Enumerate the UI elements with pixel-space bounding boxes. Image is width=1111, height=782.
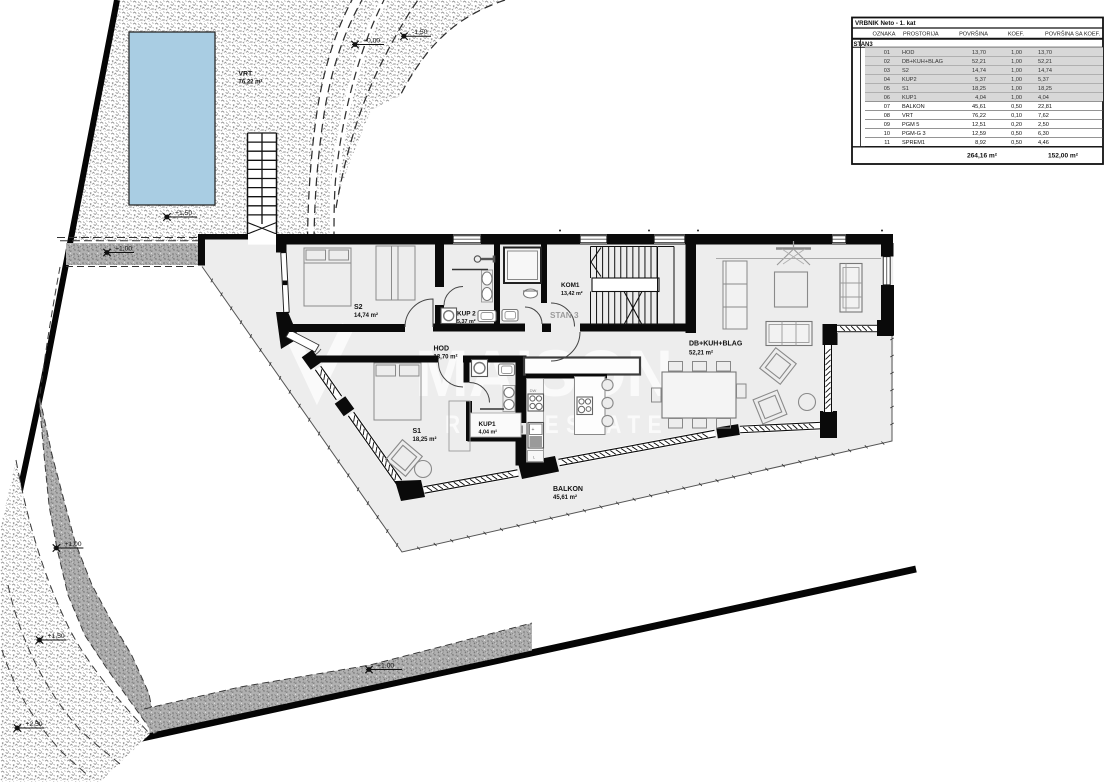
svg-text:4,04: 4,04 bbox=[975, 95, 986, 101]
svg-text:+1,00: +1,00 bbox=[377, 662, 394, 669]
svg-text:DB+KUH+BLAG: DB+KUH+BLAG bbox=[902, 59, 943, 65]
svg-text:2,50: 2,50 bbox=[1038, 122, 1049, 128]
svg-text:-1,50: -1,50 bbox=[412, 29, 428, 36]
svg-text:18,25: 18,25 bbox=[972, 86, 986, 92]
svg-text:DB+KUH+BLAG: DB+KUH+BLAG bbox=[689, 341, 743, 348]
svg-text:0,10: 0,10 bbox=[1011, 113, 1022, 119]
svg-text:52,21: 52,21 bbox=[1038, 59, 1052, 65]
svg-text:SPREM1: SPREM1 bbox=[902, 140, 925, 146]
svg-text:1,00: 1,00 bbox=[1011, 50, 1022, 56]
svg-text:14,74: 14,74 bbox=[972, 68, 986, 74]
svg-text:22,81: 22,81 bbox=[1038, 104, 1052, 110]
svg-text:18,25 m²: 18,25 m² bbox=[413, 436, 437, 443]
svg-text:6,30: 6,30 bbox=[1038, 131, 1049, 137]
svg-text:12,51: 12,51 bbox=[972, 122, 986, 128]
svg-text:BALKON: BALKON bbox=[553, 486, 583, 493]
svg-text:0,50: 0,50 bbox=[1011, 140, 1022, 146]
svg-text:OZNAKA: OZNAKA bbox=[872, 31, 895, 37]
svg-text:45,61: 45,61 bbox=[972, 104, 986, 110]
svg-text:1,00: 1,00 bbox=[1011, 59, 1022, 65]
svg-text:13,42 m²: 13,42 m² bbox=[561, 291, 583, 297]
svg-text:PGM-G 3: PGM-G 3 bbox=[902, 131, 926, 137]
svg-text:04: 04 bbox=[884, 77, 890, 83]
svg-text:+0,00: +0,00 bbox=[363, 37, 380, 44]
svg-text:14,74: 14,74 bbox=[1038, 68, 1052, 74]
svg-text:KUP2: KUP2 bbox=[902, 77, 917, 83]
svg-text:S1: S1 bbox=[413, 428, 422, 435]
svg-text:06: 06 bbox=[884, 95, 890, 101]
svg-text:4,04 m²: 4,04 m² bbox=[479, 430, 498, 436]
svg-text:S2: S2 bbox=[902, 68, 909, 74]
svg-text:STAN 3: STAN 3 bbox=[550, 311, 579, 320]
svg-text:02: 02 bbox=[884, 59, 890, 65]
svg-text:DW: DW bbox=[530, 388, 537, 393]
svg-text:45,61 m²: 45,61 m² bbox=[553, 494, 577, 501]
svg-text:09: 09 bbox=[884, 122, 890, 128]
svg-text:08: 08 bbox=[884, 113, 890, 119]
svg-text:POVRŠINA SA KOEF.: POVRŠINA SA KOEF. bbox=[1045, 30, 1100, 37]
svg-text:11: 11 bbox=[884, 140, 890, 146]
svg-text:+2,50: +2,50 bbox=[25, 721, 42, 728]
svg-text:76,22 m²: 76,22 m² bbox=[239, 79, 263, 86]
svg-text:KOEF.: KOEF. bbox=[1008, 31, 1025, 37]
svg-text:18,25: 18,25 bbox=[1038, 86, 1052, 92]
svg-text:5,37: 5,37 bbox=[975, 77, 986, 83]
svg-text:KUP1: KUP1 bbox=[902, 95, 917, 101]
svg-text:+1,00: +1,00 bbox=[64, 541, 81, 548]
svg-text:1,00: 1,00 bbox=[1011, 68, 1022, 74]
svg-text:HOD: HOD bbox=[902, 50, 914, 56]
svg-text:1,00: 1,00 bbox=[1011, 95, 1022, 101]
svg-text:07: 07 bbox=[884, 104, 890, 110]
svg-text:52,21: 52,21 bbox=[972, 59, 986, 65]
svg-text:03: 03 bbox=[884, 68, 890, 74]
svg-text:PROSTORIJA: PROSTORIJA bbox=[903, 31, 939, 37]
svg-text:5,37: 5,37 bbox=[1038, 77, 1049, 83]
svg-text:+1,50: +1,50 bbox=[175, 210, 192, 217]
svg-text:4,46: 4,46 bbox=[1038, 140, 1049, 146]
svg-text:152,00 m²: 152,00 m² bbox=[1048, 153, 1079, 160]
svg-text:10: 10 bbox=[884, 131, 890, 137]
svg-text:KUP 2: KUP 2 bbox=[457, 311, 476, 318]
svg-text:VRBNIK Neto - 1. kat: VRBNIK Neto - 1. kat bbox=[855, 20, 916, 27]
svg-text:05: 05 bbox=[884, 86, 890, 92]
svg-text:1,00: 1,00 bbox=[1011, 77, 1022, 83]
svg-text:0,50: 0,50 bbox=[1011, 131, 1022, 137]
svg-text:4,04: 4,04 bbox=[1038, 95, 1049, 101]
svg-text:13,70: 13,70 bbox=[972, 50, 986, 56]
svg-text:KUP1: KUP1 bbox=[479, 421, 496, 428]
svg-text:VRT: VRT bbox=[239, 71, 253, 78]
svg-text:264,16 m²: 264,16 m² bbox=[967, 153, 998, 160]
svg-text:1,00: 1,00 bbox=[1011, 86, 1022, 92]
svg-text:+: + bbox=[532, 427, 535, 433]
svg-text:14,74 m²: 14,74 m² bbox=[354, 312, 378, 319]
svg-text:76,22: 76,22 bbox=[972, 113, 986, 119]
svg-text:8,92: 8,92 bbox=[975, 140, 986, 146]
svg-text:12,59: 12,59 bbox=[972, 131, 986, 137]
svg-text:13,70: 13,70 bbox=[1038, 50, 1052, 56]
svg-text:S2: S2 bbox=[354, 304, 363, 311]
svg-text:POVRŠINA: POVRŠINA bbox=[959, 30, 988, 37]
svg-text:+1,00: +1,00 bbox=[115, 245, 132, 252]
svg-text:VRT: VRT bbox=[902, 113, 914, 119]
svg-text:01: 01 bbox=[884, 50, 890, 56]
svg-text:7,62: 7,62 bbox=[1038, 113, 1049, 119]
svg-text:0,20: 0,20 bbox=[1011, 122, 1022, 128]
svg-text:HOD: HOD bbox=[434, 346, 450, 353]
svg-text:0,50: 0,50 bbox=[1011, 104, 1022, 110]
svg-text:PGM 5: PGM 5 bbox=[902, 122, 919, 128]
svg-text:13,70 m²: 13,70 m² bbox=[434, 354, 458, 361]
svg-text:S1: S1 bbox=[902, 86, 909, 92]
svg-text:52,21 m²: 52,21 m² bbox=[689, 350, 713, 357]
svg-text:5,37 m²: 5,37 m² bbox=[457, 319, 476, 325]
svg-text:KOM1: KOM1 bbox=[561, 282, 580, 289]
svg-text:+1,50: +1,50 bbox=[48, 633, 65, 640]
svg-text:BALKON: BALKON bbox=[902, 104, 925, 110]
